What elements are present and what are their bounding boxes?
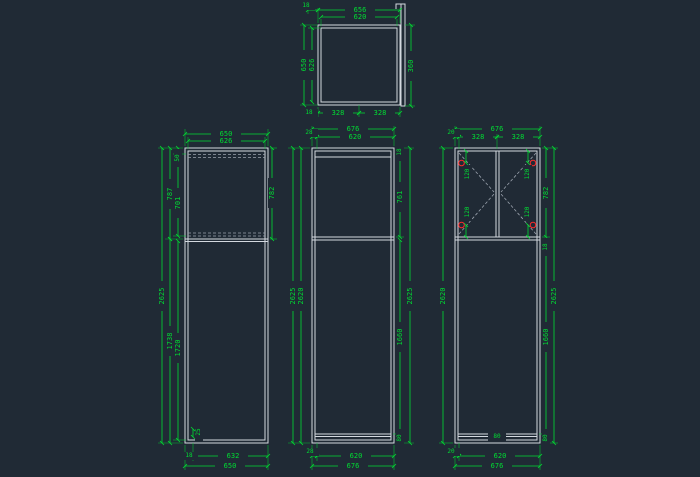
left-bottom-outer-dim: 650: [215, 462, 245, 470]
right-elevation-lines: [439, 126, 558, 470]
left-top-gap-dim: 50: [174, 149, 182, 167]
hinge-marker: [530, 222, 536, 228]
right-bottom-inner-dim: 620: [485, 452, 515, 460]
left-upper-section-dim: 787: [166, 179, 174, 209]
hinge-offset-dim: 120: [524, 165, 532, 183]
middle-bottom-outer-dim: 676: [338, 462, 368, 470]
left-lower-section-dim: 1738: [166, 326, 174, 356]
drawing-lines: [0, 0, 700, 477]
right-top-half-dim: 328: [503, 133, 533, 141]
middle-total-height-dim: 2625: [406, 281, 414, 311]
hinge-offset-dim: 120: [524, 203, 532, 221]
right-rail-label: 80: [488, 433, 506, 441]
plan-bottom-half-dim: 328: [365, 109, 395, 117]
left-bottom-thickness-dim: 18: [180, 452, 198, 460]
right-lower-inner-dim: 1660: [542, 322, 550, 352]
middle-botrail-dim: 80: [396, 429, 404, 447]
plan-bottom-thickness-dim: 18: [300, 109, 318, 117]
plan-depth-outer-dim: 650: [300, 50, 308, 80]
right-top-half-dim: 328: [463, 133, 493, 141]
middle-bottom-inner-dim: 620: [341, 452, 371, 460]
right-bottom-trim-dim: 20: [442, 448, 460, 456]
cad-canvas[interactable]: 18 656 620 650 626 360 18 328 328 650 62…: [0, 0, 700, 477]
middle-top-trim-dim: 28: [300, 129, 318, 137]
right-height-outer-dim: 2620: [439, 281, 447, 311]
middle-toprail-dim: 18: [396, 143, 404, 161]
left-door-height-dim: 782: [268, 178, 276, 208]
right-top-outer-dim: 676: [482, 125, 512, 133]
left-bottom-inner-dim: 632: [218, 452, 248, 460]
middle-top-inner-dim: 620: [340, 133, 370, 141]
middle-top-outer-dim: 676: [338, 125, 368, 133]
left-bottom-detail-dim: 25: [195, 423, 203, 441]
left-upper-inner-dim: 701: [174, 188, 182, 218]
right-divider-dim: 18: [542, 238, 550, 256]
hinge-offset-dim: 120: [464, 165, 472, 183]
plan-depth-inner-dim: 626: [308, 50, 316, 80]
middle-upper-inner-dim: 761: [396, 182, 404, 212]
hinge-marker: [459, 222, 465, 228]
middle-height-outer-dim: 2625: [289, 281, 297, 311]
right-botrail-dim: 80: [542, 429, 550, 447]
middle-height-inner-dim: 2620: [297, 281, 305, 311]
middle-lower-inner-dim: 1660: [396, 322, 404, 352]
hinge-offset-dim: 120: [464, 203, 472, 221]
left-top-inner-dim: 626: [211, 137, 241, 145]
middle-bottom-trim-dim: 28: [301, 448, 319, 456]
left-total-height-dim: 2625: [158, 281, 166, 311]
middle-elevation-lines: [288, 126, 414, 470]
plan-side-height-dim: 360: [407, 51, 415, 81]
plan-thickness-dim: 18: [297, 2, 315, 10]
right-total-height-dim: 2625: [550, 281, 558, 311]
plan-width-inner-dim: 620: [345, 13, 375, 21]
right-door-height-dim: 782: [542, 178, 550, 208]
right-bottom-outer-dim: 676: [482, 462, 512, 470]
left-elevation-lines: [158, 129, 277, 470]
left-lower-inner-dim: 1720: [174, 333, 182, 363]
plan-bottom-half-dim: 328: [323, 109, 353, 117]
right-top-trim-dim: 20: [442, 129, 460, 137]
